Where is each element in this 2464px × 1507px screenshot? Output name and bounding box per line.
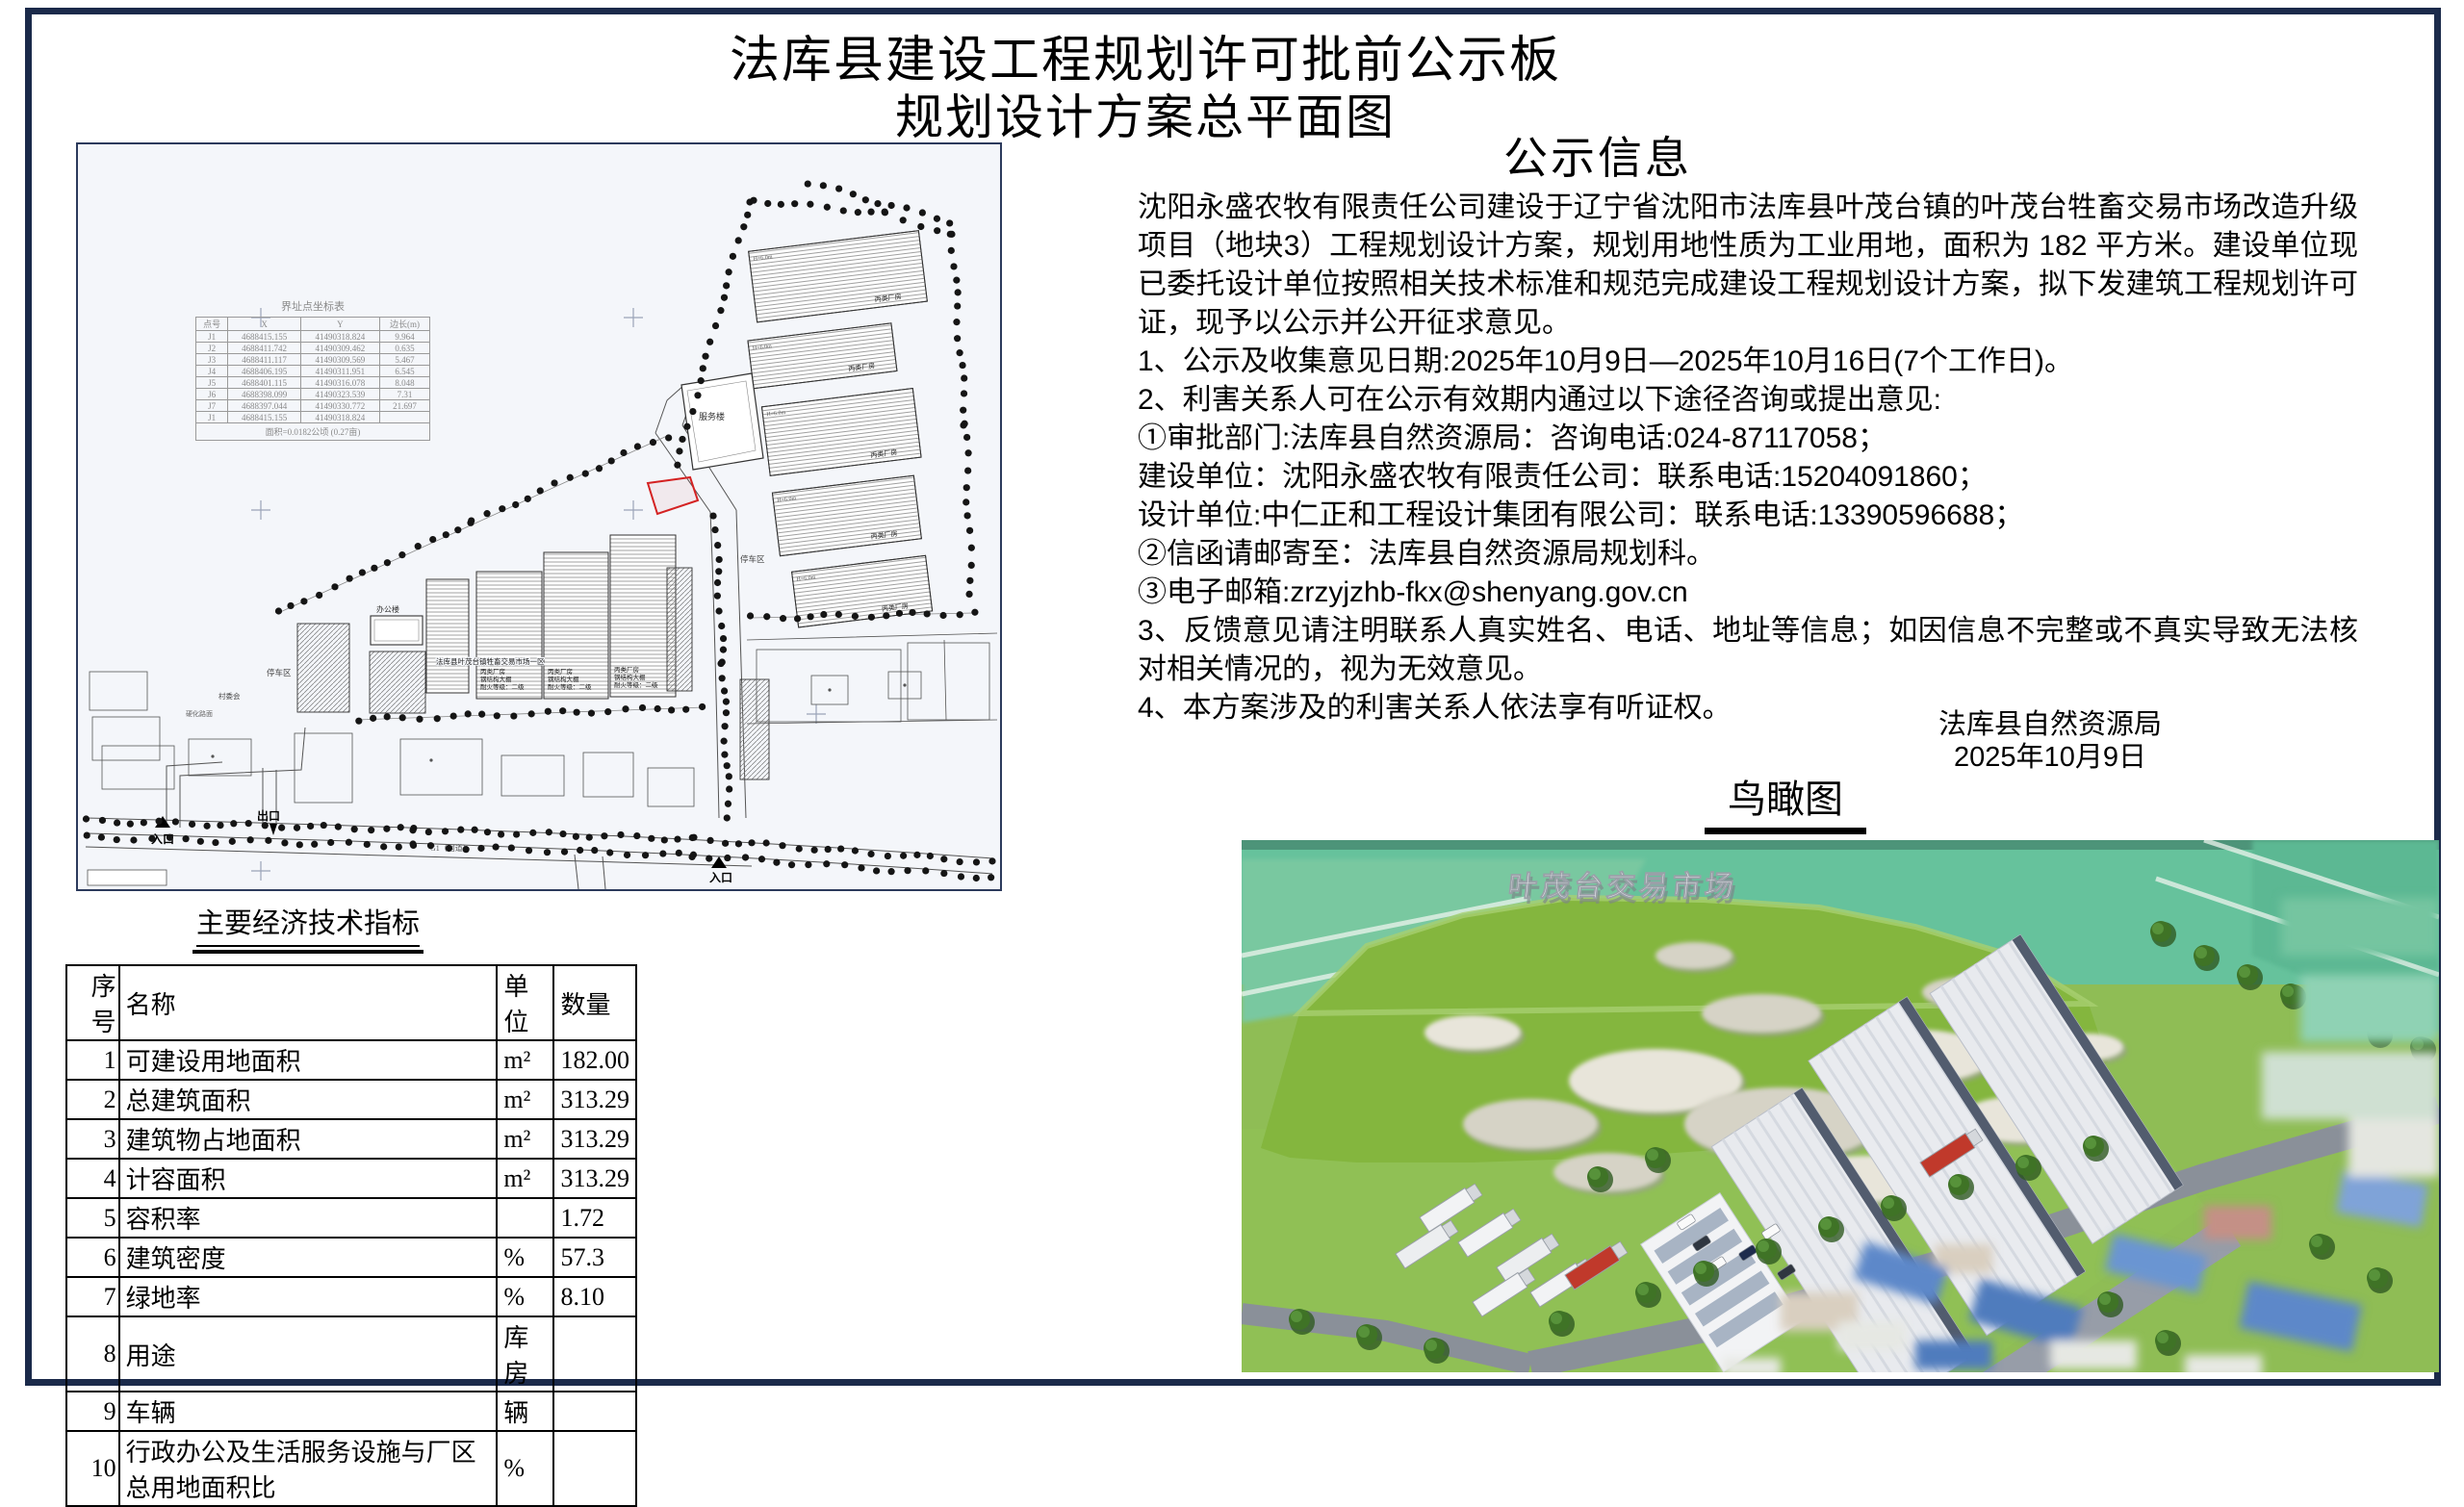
- table-cell: 计容面积: [119, 1159, 498, 1198]
- table-cell: 4688411.742: [228, 343, 301, 354]
- table-row: 5容积率1.72: [66, 1198, 636, 1238]
- table-cell: %: [497, 1277, 553, 1316]
- table-cell: 6.545: [379, 366, 429, 377]
- table-cell: J3: [196, 354, 228, 366]
- service-building-label: 服务楼: [699, 411, 725, 421]
- table-cell: 容积率: [119, 1198, 498, 1238]
- warehouse-cluster-ne: 丙类厂房 丙类厂房 丙类厂房 丙类厂房 丙类厂房 H=6.0m H=6.0m H…: [737, 231, 965, 629]
- factory-type-label: 丙类厂房: [548, 667, 573, 676]
- table-cell: J2: [196, 343, 228, 354]
- column-header: Y: [300, 318, 379, 331]
- site-plan-panel: 丙类厂房 丙类厂房 丙类厂房 丙类厂房 丙类厂房 H=6.0m H=6.0m H…: [76, 142, 1002, 891]
- table-cell: 8: [66, 1316, 119, 1392]
- table-cell: 4: [66, 1159, 119, 1198]
- exit-label: 出口: [257, 808, 280, 823]
- structure-type-label: 钢结构大棚: [548, 675, 579, 683]
- notice-paragraph: ②信函请邮寄至：法库县自然资源局规划科。: [1138, 535, 2358, 574]
- office-building: [371, 616, 423, 645]
- notice-paragraph: 建设单位：沈阳永盛农牧有限责任公司：联系电话:15204091860；: [1138, 458, 2358, 497]
- table-cell: 8.10: [553, 1277, 636, 1316]
- table-cell: 4688398.099: [228, 389, 301, 400]
- table-cell: 41490318.824: [300, 412, 379, 423]
- table-cell: 41490309.462: [300, 343, 379, 354]
- mountain-sign: 叶茂台交易市场 叶茂台交易市场: [1506, 870, 1742, 907]
- notice-paragraph: 设计单位:中仁正和工程设计集团有限公司：联系电话:13390596688；: [1138, 497, 2358, 535]
- table-cell: [553, 1431, 636, 1506]
- table-cell: m²: [497, 1119, 553, 1159]
- table-cell: %: [497, 1431, 553, 1506]
- table-row: J64688398.09941490323.5397.31: [196, 389, 430, 400]
- table-cell: 7.31: [379, 389, 429, 400]
- column-header: 边长(m): [379, 318, 429, 331]
- fire-rating-label: 耐火等级：二级: [614, 680, 658, 689]
- table-cell: 可建设用地面积: [119, 1040, 498, 1080]
- factory-type-label: 丙类厂房: [480, 667, 505, 676]
- sign-text: 叶茂台交易市场: [1506, 870, 1739, 903]
- table-cell: [379, 412, 429, 423]
- notice-paragraph: 2、利害关系人可在公示有效期内通过以下途径咨询或提出意见:: [1138, 381, 2358, 420]
- table-cell: J1: [196, 412, 228, 423]
- table-row: 6建筑密度%57.3: [66, 1238, 636, 1277]
- table-cell: 41490316.078: [300, 377, 379, 389]
- table-cell: 4688406.195: [228, 366, 301, 377]
- table-cell: 1: [66, 1040, 119, 1080]
- table-row: 10行政办公及生活服务设施与厂区总用地面积比%: [66, 1431, 636, 1506]
- notice-paragraph: ①审批部门:法库县自然资源局：咨询电话:024-87117058；: [1138, 420, 2358, 458]
- column-header: 数量: [553, 965, 636, 1040]
- table-cell: 8.048: [379, 377, 429, 389]
- table-row: J54688401.11541490316.0788.048: [196, 377, 430, 389]
- table-cell: 41490323.539: [300, 389, 379, 400]
- fire-rating-label: 耐火等级：二级: [548, 682, 592, 691]
- table-cell: 建筑物占地面积: [119, 1119, 498, 1159]
- village-committee-label: 村委会: [218, 691, 241, 701]
- factory-type-label: 丙类厂房: [614, 665, 639, 674]
- table-cell: 4688415.155: [228, 412, 301, 423]
- econ-table-title: 主要经济技术指标: [135, 901, 481, 947]
- table-cell: 库房: [497, 1316, 553, 1392]
- table-cell: [553, 1392, 636, 1431]
- aerial-rendering: 叶茂台交易市场 叶茂台交易市场: [1242, 840, 2439, 1372]
- table-cell: 313.29: [553, 1080, 636, 1119]
- table-cell: J1: [196, 331, 228, 343]
- aerial-view-heading: 鸟瞰图: [1641, 768, 1930, 834]
- table-cell: 7: [66, 1277, 119, 1316]
- table-cell: 9.964: [379, 331, 429, 343]
- table-cell: 41490309.569: [300, 354, 379, 366]
- fire-rating-label: 耐火等级：二级: [480, 682, 525, 691]
- boundary-point-table: 界址点坐标表 点号XY边长(m) J14688415.15541490318.8…: [195, 298, 430, 441]
- column-header: 单位: [497, 965, 553, 1040]
- table-row: J34688411.11741490309.5695.467: [196, 354, 430, 366]
- table-row: J44688406.19541490311.9516.545: [196, 366, 430, 377]
- table-cell: J4: [196, 366, 228, 377]
- parking-label-2: 停车区: [740, 554, 765, 564]
- table-cell: 57.3: [553, 1238, 636, 1277]
- table-cell: 总建筑面积: [119, 1080, 498, 1119]
- table-row: 9车辆辆: [66, 1392, 636, 1431]
- table-cell: [553, 1316, 636, 1392]
- office-building-label: 办公楼: [376, 604, 399, 614]
- aerial-view-heading-text: 鸟瞰图: [1705, 768, 1866, 834]
- table-row: J14688415.15541490318.8249.964: [196, 331, 430, 343]
- notice-paragraph: 3、反馈意见请注明联系人真实姓名、电话、地址等信息；如因信息不完整或不真实导致无…: [1138, 612, 2358, 689]
- table-cell: 5: [66, 1198, 119, 1238]
- market-zone-label: 法库县叶茂台镇牲畜交易市场一区: [436, 656, 545, 666]
- table-cell: 41490311.951: [300, 366, 379, 377]
- table-cell: 3: [66, 1119, 119, 1159]
- table-cell: J5: [196, 377, 228, 389]
- paved-road-label: 硬化路面: [186, 709, 213, 718]
- boundary-table-footer: 面积=0.0182公顷 (0.27亩): [195, 423, 430, 441]
- table-row: J24688411.74241490309.4620.635: [196, 343, 430, 354]
- table-cell: 6: [66, 1238, 119, 1277]
- notice-paragraph: ③电子邮箱:zrzyjzhb-fkx@shenyang.gov.cn: [1138, 574, 2358, 612]
- table-row: 7绿地率%8.10: [66, 1277, 636, 1316]
- column-header: X: [228, 318, 301, 331]
- signature-org: 法库县自然资源局: [1848, 708, 2252, 741]
- table-cell: [497, 1198, 553, 1238]
- table-cell: 2: [66, 1080, 119, 1119]
- econ-table-grid: 序号名称单位数量 1可建设用地面积m²182.002总建筑面积m²313.293…: [65, 964, 637, 1507]
- boundary-table-title: 界址点坐标表: [195, 298, 430, 314]
- site-plan-drawing: 丙类厂房 丙类厂房 丙类厂房 丙类厂房 丙类厂房 H=6.0m H=6.0m H…: [78, 144, 1000, 889]
- table-cell: 0.635: [379, 343, 429, 354]
- table-row: 1可建设用地面积m²182.00: [66, 1040, 636, 1080]
- econ-table-title-text: 主要经济技术指标: [196, 901, 420, 947]
- table-cell: J7: [196, 400, 228, 412]
- notice-paragraph: 沈阳永盛农牧有限责任公司建设于辽宁省沈阳市法库县叶茂台镇的叶茂台牲畜交易市场改造…: [1138, 189, 2358, 343]
- service-building: 服务楼: [681, 373, 763, 470]
- table-cell: m²: [497, 1159, 553, 1198]
- table-cell: 辆: [497, 1392, 553, 1431]
- table-row: 3建筑物占地面积m²313.29: [66, 1119, 636, 1159]
- table-cell: 4688415.155: [228, 331, 301, 343]
- econ-table: 序号名称单位数量 1可建设用地面积m²182.002总建筑面积m²313.293…: [65, 964, 637, 1507]
- notice-heading: 公示信息: [1328, 123, 1867, 187]
- subject-parcel-outline: [648, 477, 698, 514]
- table-row: J74688397.04441490330.77221.697: [196, 400, 430, 412]
- table-cell: 41490318.824: [300, 331, 379, 343]
- table-cell: J6: [196, 389, 228, 400]
- table-cell: m²: [497, 1040, 553, 1080]
- entrance-label-2: 入口: [709, 871, 732, 884]
- table-cell: 21.697: [379, 400, 429, 412]
- parking-label: 停车区: [267, 668, 292, 677]
- signature-block: 法库县自然资源局 2025年10月9日: [1848, 708, 2252, 774]
- table-cell: %: [497, 1238, 553, 1277]
- column-header: 名称: [119, 965, 498, 1040]
- notice-body: 沈阳永盛农牧有限责任公司建设于辽宁省沈阳市法库县叶茂台镇的叶茂台牲畜交易市场改造…: [1138, 189, 2358, 728]
- table-cell: 10: [66, 1431, 119, 1506]
- table-cell: 4688397.044: [228, 400, 301, 412]
- table-cell: 4688401.115: [228, 377, 301, 389]
- table-row: 8用途库房: [66, 1316, 636, 1392]
- table-row: 4计容面积m²313.29: [66, 1159, 636, 1198]
- table-cell: 1.72: [553, 1198, 636, 1238]
- table-cell: 9: [66, 1392, 119, 1431]
- aerial-svg: 叶茂台交易市场 叶茂台交易市场: [1242, 840, 2439, 1372]
- structure-type-label: 钢结构大棚: [614, 673, 646, 681]
- table-cell: m²: [497, 1080, 553, 1119]
- table-cell: 4688411.117: [228, 354, 301, 366]
- table-cell: 行政办公及生活服务设施与厂区总用地面积比: [119, 1431, 498, 1506]
- notice-paragraph: 1、公示及收集意见日期:2025年10月9日—2025年10月16日(7个工作日…: [1138, 343, 2358, 381]
- table-cell: 41490330.772: [300, 400, 379, 412]
- table-row: 2总建筑面积m²313.29: [66, 1080, 636, 1119]
- column-header: 序号: [66, 965, 119, 1040]
- table-cell: 车辆: [119, 1392, 498, 1431]
- table-cell: 绿地率: [119, 1277, 498, 1316]
- table-cell: 5.467: [379, 354, 429, 366]
- column-header: 点号: [196, 318, 228, 331]
- boundary-table: 点号XY边长(m) J14688415.15541490318.8249.964…: [195, 317, 430, 423]
- table-cell: 用途: [119, 1316, 498, 1392]
- table-cell: 182.00: [553, 1040, 636, 1080]
- table-cell: 313.29: [553, 1119, 636, 1159]
- table-cell: 313.29: [553, 1159, 636, 1198]
- table-cell: 建筑密度: [119, 1238, 498, 1277]
- table-row: J14688415.15541490318.824: [196, 412, 430, 423]
- structure-type-label: 钢结构大棚: [480, 675, 512, 683]
